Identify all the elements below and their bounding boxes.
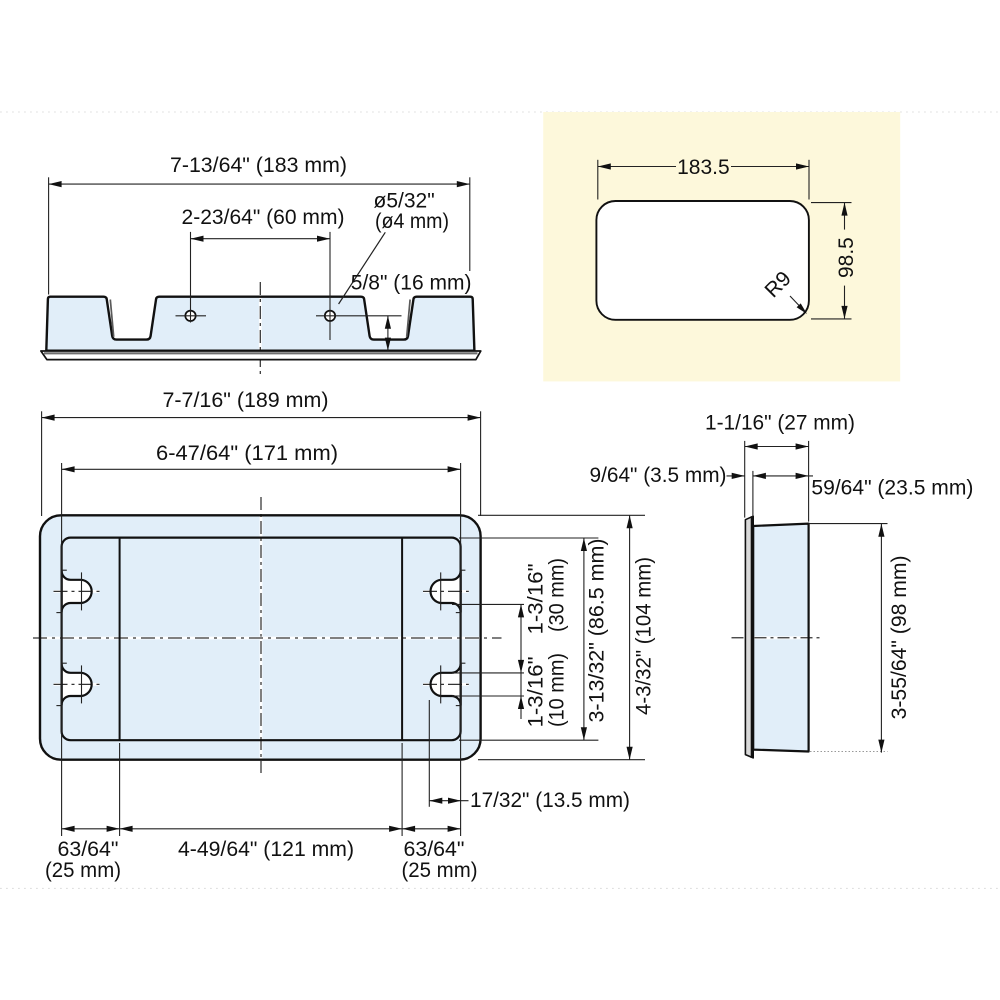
svg-text:3-55/64" (98 mm): 3-55/64" (98 mm) — [888, 555, 911, 719]
svg-text:(10 mm): (10 mm) — [546, 653, 569, 727]
svg-text:59/64" (23.5 mm): 59/64" (23.5 mm) — [811, 476, 973, 499]
svg-text:7-13/64" (183 mm): 7-13/64" (183 mm) — [170, 154, 347, 177]
svg-text:3-13/32" (86.5 mm): 3-13/32" (86.5 mm) — [586, 539, 609, 723]
svg-text:6-47/64" (171 mm): 6-47/64" (171 mm) — [156, 442, 338, 465]
svg-text:1-3/16": 1-3/16" — [525, 657, 548, 728]
svg-text:(25 mm): (25 mm) — [402, 859, 478, 882]
svg-text:7-7/16" (189 mm): 7-7/16" (189 mm) — [163, 389, 329, 412]
svg-text:9/64" (3.5 mm): 9/64" (3.5 mm) — [590, 464, 727, 487]
svg-text:(ø4 mm): (ø4 mm) — [375, 210, 449, 233]
svg-text:2-23/64" (60 mm): 2-23/64" (60 mm) — [182, 206, 345, 229]
svg-text:183.5: 183.5 — [677, 156, 730, 179]
svg-text:4-49/64" (121 mm): 4-49/64" (121 mm) — [178, 838, 354, 861]
svg-text:(25 mm): (25 mm) — [45, 859, 121, 882]
svg-text:1-3/16": 1-3/16" — [525, 564, 548, 635]
svg-text:98.5: 98.5 — [835, 237, 858, 278]
svg-text:17/32" (13.5 mm): 17/32" (13.5 mm) — [470, 789, 630, 812]
svg-text:5/8" (16 mm): 5/8" (16 mm) — [351, 271, 472, 294]
svg-text:4-3/32" (104 mm): 4-3/32" (104 mm) — [633, 557, 656, 715]
svg-text:63/64": 63/64" — [404, 838, 465, 861]
svg-text:1-1/16" (27 mm): 1-1/16" (27 mm) — [705, 412, 855, 435]
svg-text:63/64": 63/64" — [58, 838, 119, 861]
svg-text:(30 mm): (30 mm) — [546, 558, 569, 632]
